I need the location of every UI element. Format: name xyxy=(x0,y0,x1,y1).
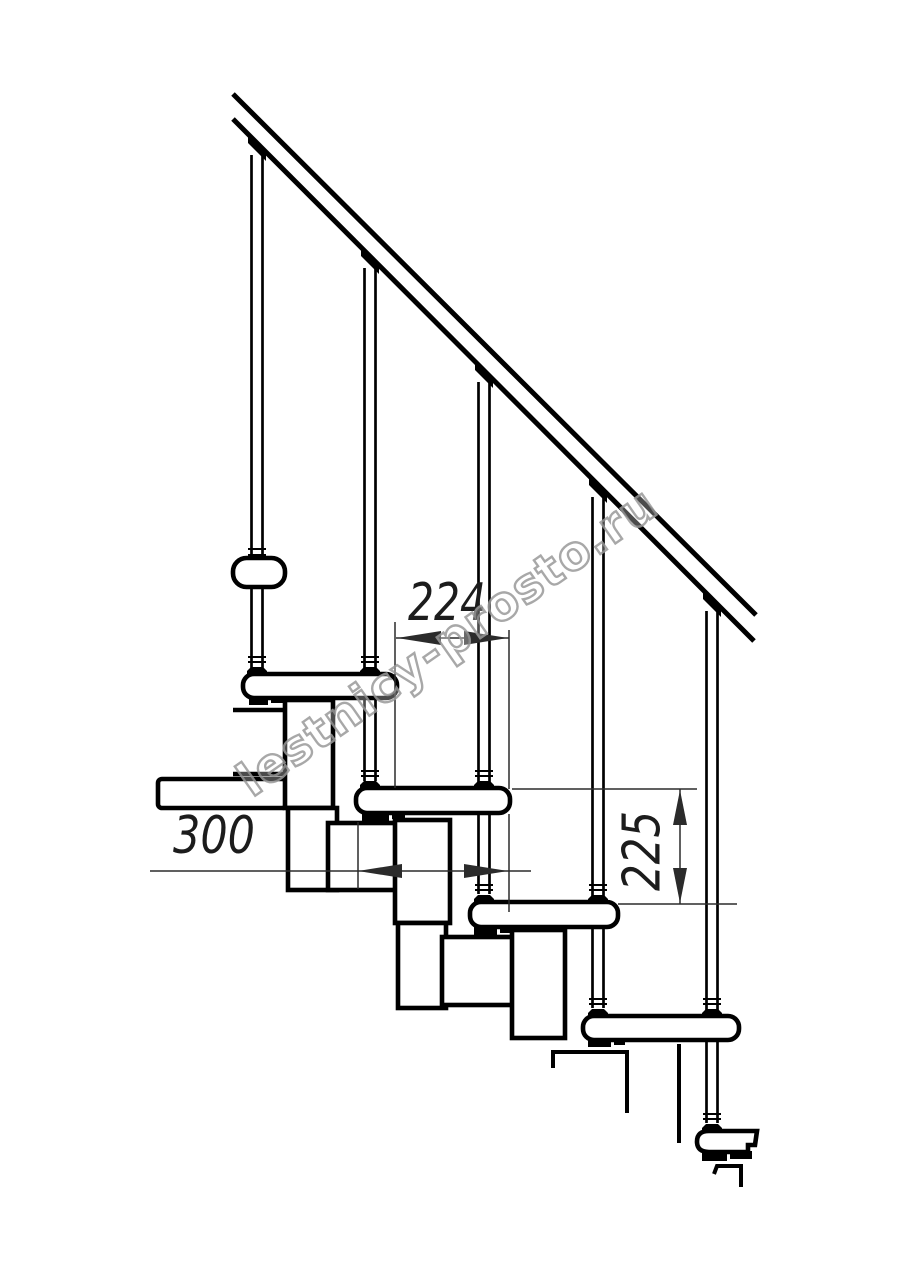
dimension-225: 225 xyxy=(512,789,737,904)
module-broken-5 xyxy=(714,1166,741,1187)
module-broken-3 xyxy=(553,1052,627,1113)
dimension-label-300: 300 xyxy=(173,806,255,866)
tread-3 xyxy=(470,902,618,927)
module-horizontal-2 xyxy=(442,937,518,1005)
support-modules xyxy=(285,700,741,1187)
tread-2 xyxy=(356,788,510,813)
staircase-drawing-canvas: 224 300 225 lestnicy-prosto.ru xyxy=(0,0,914,1280)
module-vertical-3 xyxy=(512,930,565,1038)
watermark-text: lestnicy-prosto.ru xyxy=(227,476,668,807)
dimension-label-225: 225 xyxy=(613,811,673,891)
baluster-5 xyxy=(703,591,721,1123)
module-horizontal-1 xyxy=(328,823,404,890)
handrail xyxy=(233,94,756,641)
tread-5-partial xyxy=(697,1131,757,1152)
staircase-technical-drawing-page: 224 300 225 lestnicy-prosto.ru xyxy=(0,0,914,1280)
rail-end-capsule xyxy=(233,558,285,587)
module-vertical-2b xyxy=(398,923,446,1008)
tread-4 xyxy=(583,1016,739,1040)
